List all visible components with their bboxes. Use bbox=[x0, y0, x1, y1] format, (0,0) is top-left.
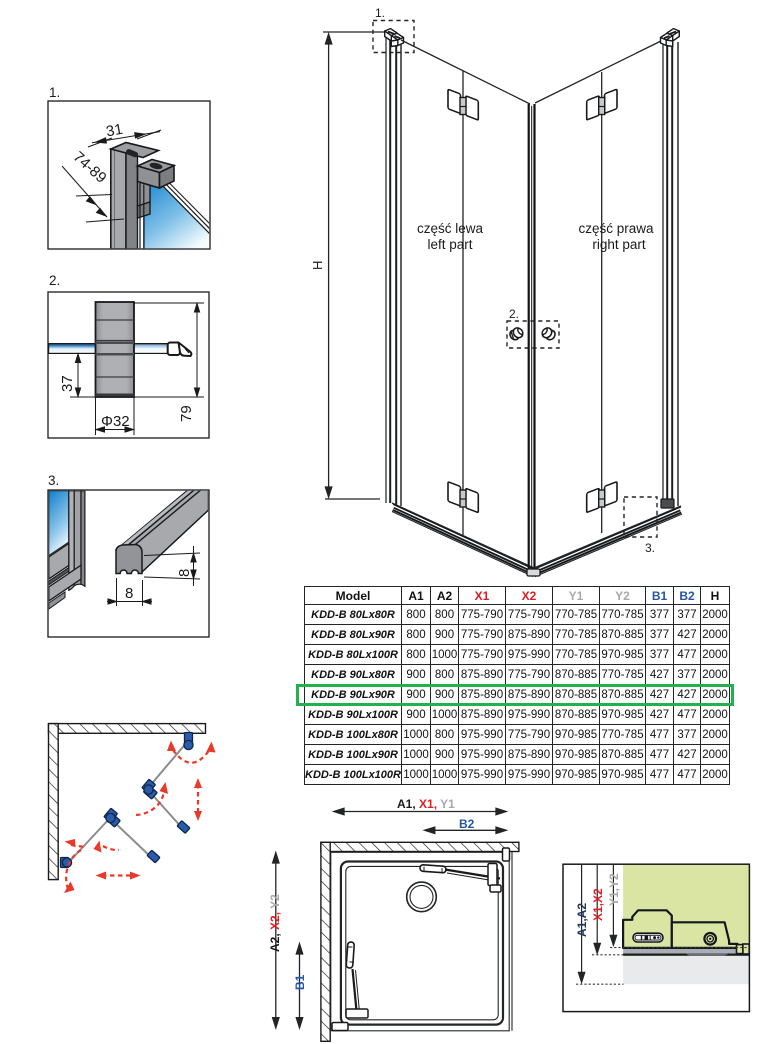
svg-text:część prawa: część prawa bbox=[578, 221, 654, 236]
svg-text:część lewa: część lewa bbox=[417, 221, 484, 236]
svg-text:1.: 1. bbox=[49, 85, 60, 100]
svg-text:Φ32: Φ32 bbox=[101, 413, 130, 430]
svg-text:A1,A2: A1,A2 bbox=[575, 903, 589, 937]
svg-text:X1,X2: X1,X2 bbox=[591, 888, 605, 921]
svg-text:Y1,Y2: Y1,Y2 bbox=[607, 873, 621, 906]
svg-text:3.: 3. bbox=[48, 473, 59, 488]
svg-text:B2: B2 bbox=[459, 817, 475, 831]
svg-text:2.: 2. bbox=[509, 307, 519, 321]
svg-text:A2, X2, Y2: A2, X2, Y2 bbox=[268, 894, 282, 952]
svg-text:right part: right part bbox=[592, 237, 646, 252]
svg-text:A1, X1, Y1: A1, X1, Y1 bbox=[397, 797, 455, 811]
svg-text:B1: B1 bbox=[293, 974, 307, 990]
svg-text:2.: 2. bbox=[49, 273, 60, 288]
svg-text:left part: left part bbox=[427, 237, 472, 252]
svg-text:8: 8 bbox=[176, 569, 193, 577]
svg-text:3.: 3. bbox=[645, 541, 655, 555]
svg-text:79: 79 bbox=[178, 405, 195, 422]
svg-text:1.: 1. bbox=[375, 6, 385, 20]
svg-text:31: 31 bbox=[105, 121, 124, 141]
svg-text:37: 37 bbox=[59, 375, 76, 392]
svg-text:H: H bbox=[310, 261, 325, 270]
svg-text:8: 8 bbox=[125, 585, 133, 602]
